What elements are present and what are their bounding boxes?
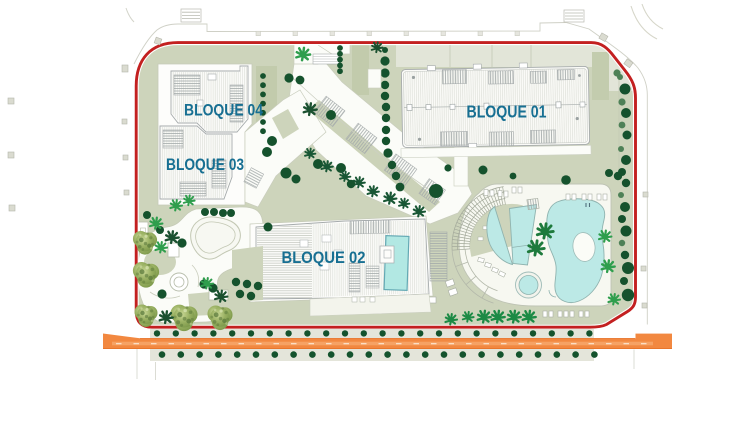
svg-text:BLOQUE 01: BLOQUE 01 bbox=[467, 102, 547, 122]
svg-text:BLOQUE 03: BLOQUE 03 bbox=[166, 155, 244, 174]
svg-text:BLOQUE 04: BLOQUE 04 bbox=[184, 100, 263, 119]
svg-text:BLOQUE 02: BLOQUE 02 bbox=[282, 248, 366, 267]
